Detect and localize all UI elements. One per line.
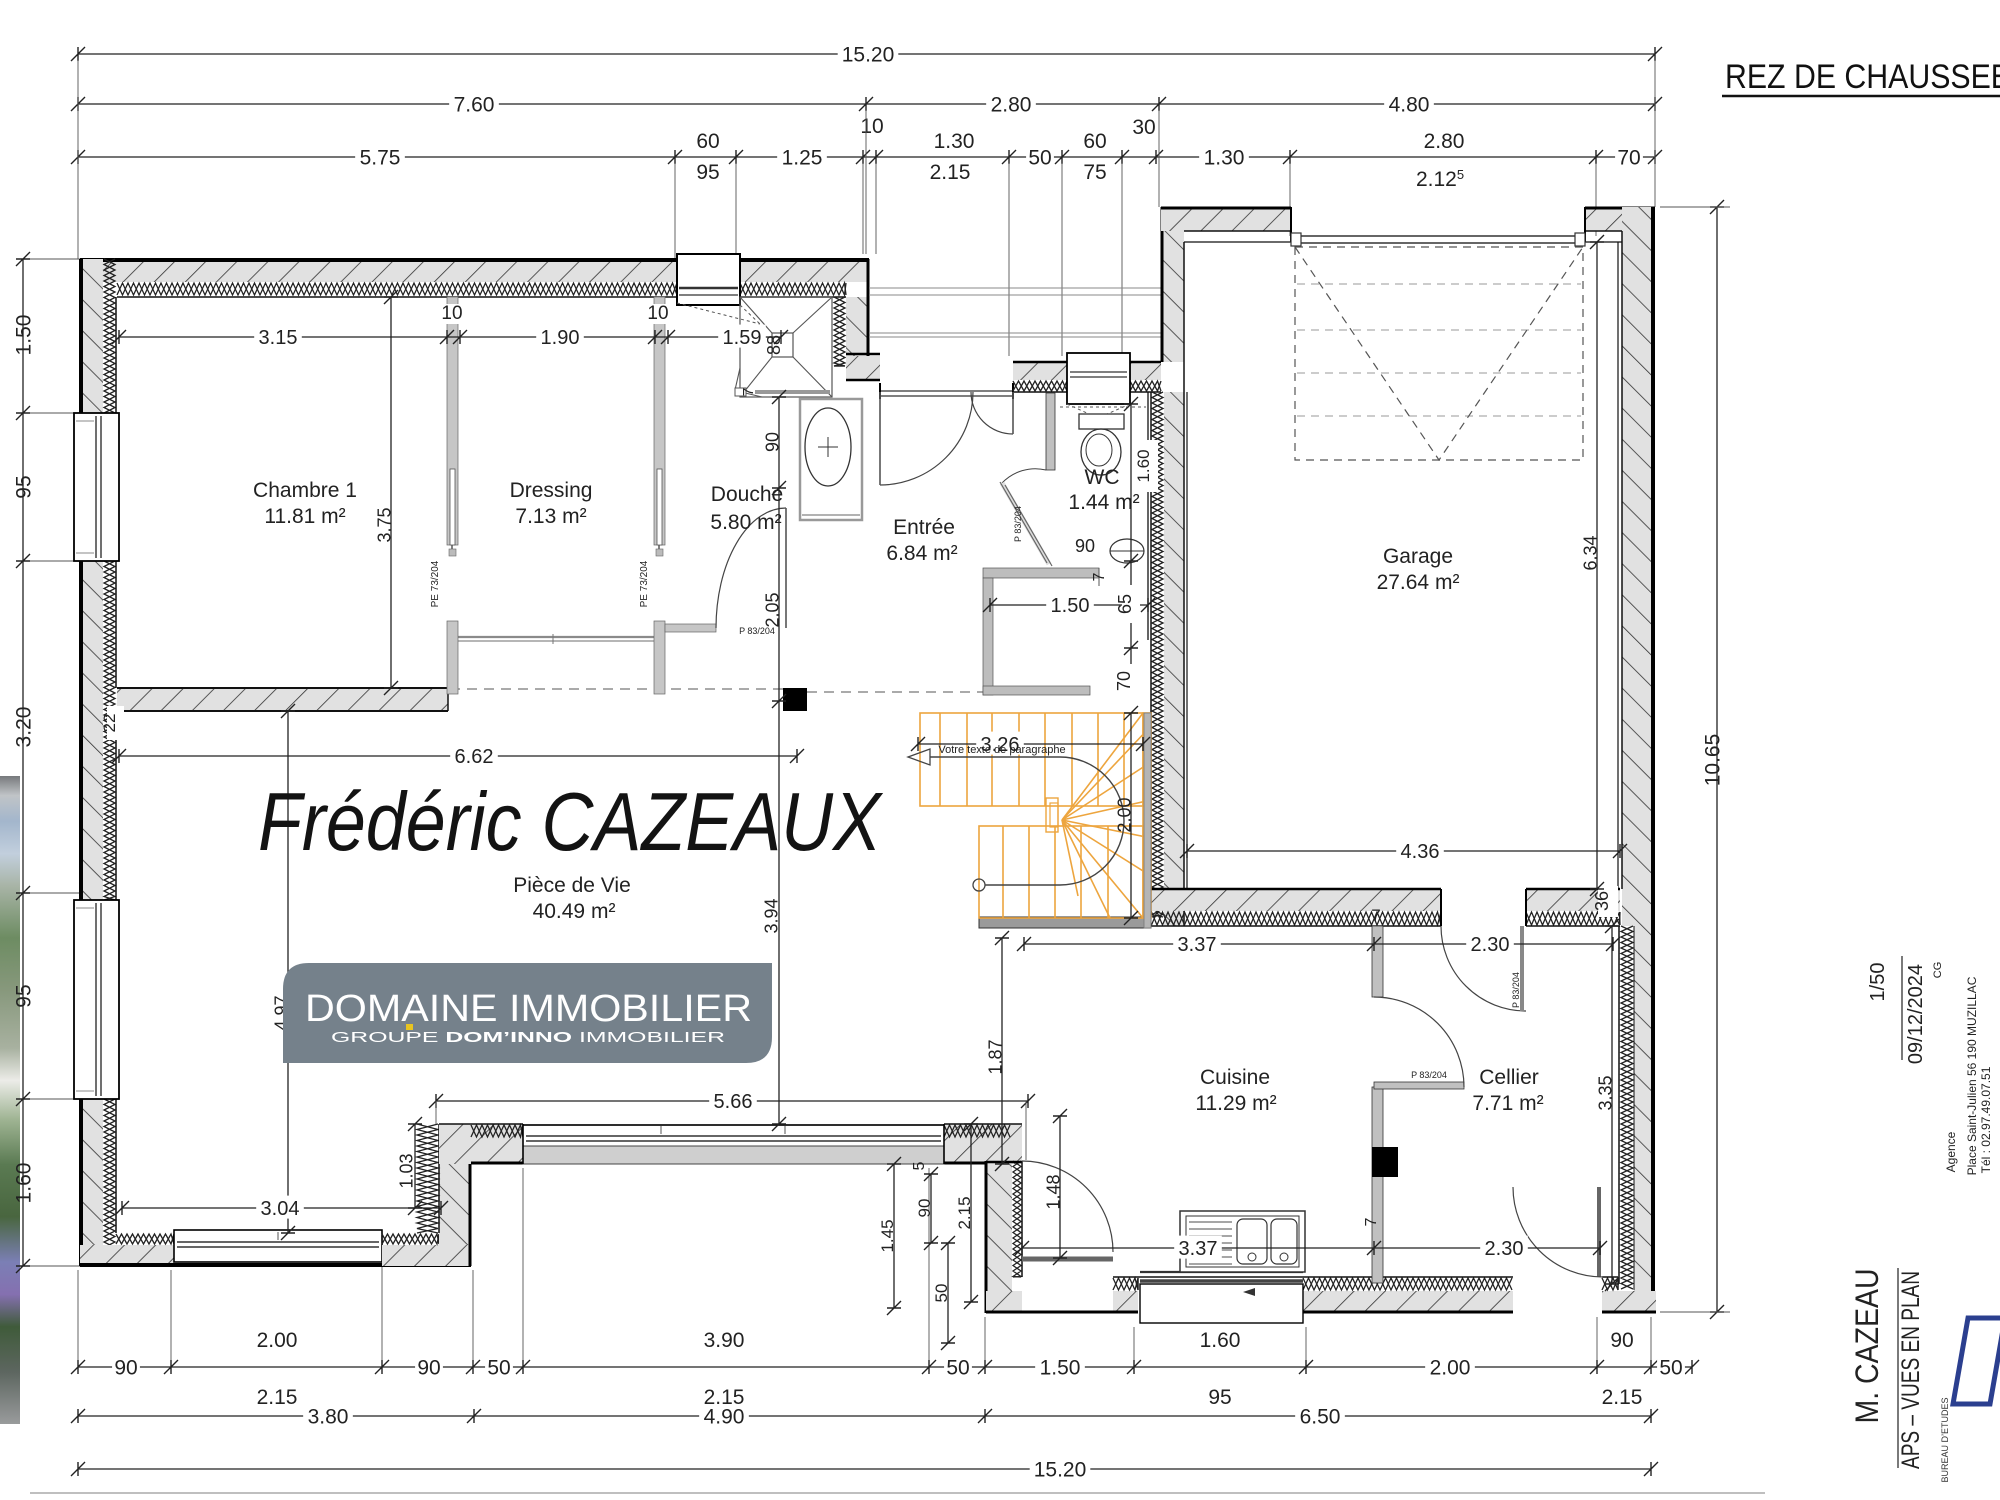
svg-text:3.80: 3.80 [308, 1406, 349, 1429]
svg-text:1.25: 1.25 [782, 147, 823, 170]
svg-text:P 83/204: P 83/204 [1511, 972, 1521, 1008]
svg-text:95: 95 [1208, 1386, 1231, 1409]
svg-text:Douche: Douche [711, 483, 783, 506]
svg-text:90: 90 [114, 1357, 137, 1380]
svg-text:2.80: 2.80 [991, 94, 1032, 117]
svg-text:P 83/204: P 83/204 [1013, 506, 1023, 542]
svg-text:1.90: 1.90 [541, 327, 580, 349]
svg-text:2.80: 2.80 [1424, 130, 1465, 153]
svg-text:2.30: 2.30 [1485, 1238, 1524, 1260]
svg-text:2.15: 2.15 [704, 1386, 745, 1409]
svg-text:09/12/2024: 09/12/2024 [1905, 964, 1927, 1064]
svg-text:22: 22 [100, 714, 119, 733]
svg-text:1.50: 1.50 [13, 315, 36, 356]
svg-text:3.75: 3.75 [374, 507, 394, 542]
svg-text:3.20: 3.20 [13, 707, 36, 748]
svg-text:Entrée: Entrée [893, 516, 955, 539]
svg-text:Tél : 02.97.49.07.51: Tél : 02.97.49.07.51 [1979, 1066, 1993, 1173]
svg-text:2.15: 2.15 [930, 161, 971, 184]
svg-text:3.15: 3.15 [259, 327, 298, 349]
svg-text:65: 65 [1115, 594, 1135, 614]
svg-text:50: 50 [946, 1357, 969, 1380]
svg-text:7.60: 7.60 [454, 94, 495, 117]
svg-text:Frédéric CAZEAUX: Frédéric CAZEAUX [258, 775, 883, 868]
svg-text:5.66: 5.66 [714, 1091, 753, 1113]
svg-text:75: 75 [1083, 161, 1106, 184]
svg-text:15.20: 15.20 [842, 44, 895, 67]
svg-text:4.90: 4.90 [704, 1406, 745, 1429]
svg-text:7: 7 [740, 388, 757, 396]
svg-text:1.48: 1.48 [1043, 1174, 1063, 1209]
svg-text:2.00: 2.00 [1114, 797, 1134, 832]
svg-text:7.13 m²: 7.13 m² [515, 505, 586, 528]
svg-text:7.71 m²: 7.71 m² [1472, 1092, 1543, 1115]
svg-text:BUREAU D’ETUDES: BUREAU D’ETUDES [1940, 1397, 1950, 1482]
svg-text:1.30: 1.30 [934, 130, 975, 153]
svg-text:CG: CG [1932, 962, 1944, 979]
svg-text:3.37: 3.37 [1178, 934, 1217, 956]
svg-text:7: 7 [1363, 1217, 1380, 1226]
svg-text:2.00: 2.00 [1430, 1357, 1471, 1380]
svg-text:10: 10 [441, 303, 462, 324]
svg-text:40.49 m²: 40.49 m² [533, 900, 616, 923]
svg-text:10.65: 10.65 [1702, 734, 1725, 787]
svg-text:3.37: 3.37 [1179, 1238, 1218, 1260]
svg-text:95: 95 [13, 984, 36, 1007]
svg-text:60: 60 [696, 130, 719, 153]
svg-text:2.00: 2.00 [257, 1329, 298, 1352]
svg-text:Cellier: Cellier [1479, 1066, 1539, 1089]
svg-text:70: 70 [1617, 147, 1640, 170]
svg-text:6.84 m²: 6.84 m² [886, 542, 957, 565]
svg-text:M. CAZEAU: M. CAZEAU [1849, 1269, 1885, 1424]
svg-text:1.59: 1.59 [723, 327, 762, 349]
svg-text:6.50: 6.50 [1300, 1406, 1341, 1429]
svg-text:1.50: 1.50 [1040, 1357, 1081, 1380]
svg-text:1.45: 1.45 [878, 1219, 897, 1252]
svg-text:WC: WC [1085, 466, 1120, 489]
svg-text:50: 50 [1028, 147, 1051, 170]
svg-text:30: 30 [1132, 116, 1155, 139]
svg-text:1.03: 1.03 [396, 1153, 416, 1188]
svg-text:95: 95 [13, 475, 36, 498]
svg-text:15.20: 15.20 [1034, 1459, 1087, 1482]
svg-text:10: 10 [860, 115, 883, 138]
svg-text:DOMAINE IMMOBILIER: DOMAINE IMMOBILIER [305, 988, 752, 1030]
svg-text:P 83/204: P 83/204 [1411, 1070, 1447, 1080]
svg-text:1.60: 1.60 [13, 1163, 36, 1204]
svg-text:1.87: 1.87 [985, 1039, 1005, 1074]
svg-text:2.15: 2.15 [1602, 1386, 1643, 1409]
svg-text:1.30: 1.30 [1204, 147, 1245, 170]
svg-text:5.80 m²: 5.80 m² [710, 511, 781, 534]
svg-text:Votre texte de paragraphe: Votre texte de paragraphe [938, 744, 1065, 756]
svg-text:Dressing: Dressing [510, 479, 593, 502]
svg-text:50: 50 [932, 1284, 951, 1303]
svg-text:7: 7 [1371, 906, 1380, 925]
svg-text:1.44 m²: 1.44 m² [1068, 491, 1139, 514]
svg-text:4.36: 4.36 [1401, 841, 1440, 863]
svg-text:GROUPE DOM’INNO IMMOBILIER: GROUPE DOM’INNO IMMOBILIER [331, 1029, 725, 1046]
svg-text:70: 70 [1114, 671, 1134, 691]
svg-text:1.60: 1.60 [1200, 1329, 1241, 1352]
svg-text:APS – VUES EN PLAN: APS – VUES EN PLAN [1897, 1271, 1925, 1469]
svg-text:10: 10 [647, 303, 668, 324]
svg-text:11.81 m²: 11.81 m² [264, 505, 345, 528]
svg-text:PE 73/204: PE 73/204 [430, 560, 441, 607]
svg-text:1.60: 1.60 [1134, 449, 1153, 482]
svg-text:1.50: 1.50 [1051, 595, 1090, 617]
svg-text:6.34: 6.34 [1580, 535, 1600, 570]
svg-text:36: 36 [1592, 891, 1612, 911]
svg-text:Agence: Agence [1944, 1131, 1958, 1172]
svg-text:4.80: 4.80 [1389, 94, 1430, 117]
svg-text:5.75: 5.75 [360, 147, 401, 170]
svg-text:5: 5 [911, 1161, 928, 1170]
svg-text:50: 50 [1659, 1357, 1682, 1380]
svg-text:Cuisine: Cuisine [1200, 1066, 1270, 1089]
svg-text:90: 90 [1075, 536, 1095, 556]
svg-text:90: 90 [417, 1357, 440, 1380]
svg-text:3.35: 3.35 [1595, 1075, 1615, 1110]
svg-text:PE 73/204: PE 73/204 [639, 560, 650, 607]
svg-text:90: 90 [915, 1199, 934, 1218]
svg-text:88: 88 [764, 335, 784, 355]
svg-text:2.15: 2.15 [257, 1386, 298, 1409]
svg-text:2.30: 2.30 [1471, 934, 1510, 956]
svg-text:2.05: 2.05 [762, 592, 782, 627]
svg-text:11.29 m²: 11.29 m² [1195, 1092, 1276, 1115]
svg-text:6.62: 6.62 [455, 746, 494, 768]
svg-text:Pièce de Vie: Pièce de Vie [513, 874, 631, 897]
svg-text:REZ DE CHAUSSEE: REZ DE CHAUSSEE [1725, 58, 2000, 96]
svg-text:3.04: 3.04 [261, 1198, 300, 1220]
svg-text:95: 95 [696, 161, 719, 184]
svg-text:7: 7 [1091, 572, 1108, 581]
svg-text:90: 90 [762, 432, 782, 452]
svg-text:1/50: 1/50 [1867, 963, 1889, 1002]
svg-text:3.94: 3.94 [761, 898, 781, 933]
svg-text:50: 50 [487, 1357, 510, 1380]
svg-text:60: 60 [1083, 130, 1106, 153]
svg-text:Chambre 1: Chambre 1 [253, 479, 357, 502]
svg-text:Place Saint-Julien 56 190 MUZI: Place Saint-Julien 56 190 MUZILLAC [1965, 976, 1979, 1175]
svg-text:27.64 m²: 27.64 m² [1377, 571, 1460, 594]
svg-text:90: 90 [1610, 1329, 1633, 1352]
svg-text:3.90: 3.90 [704, 1329, 745, 1352]
svg-text:2.15: 2.15 [955, 1196, 974, 1229]
svg-text:Garage: Garage [1383, 545, 1453, 568]
